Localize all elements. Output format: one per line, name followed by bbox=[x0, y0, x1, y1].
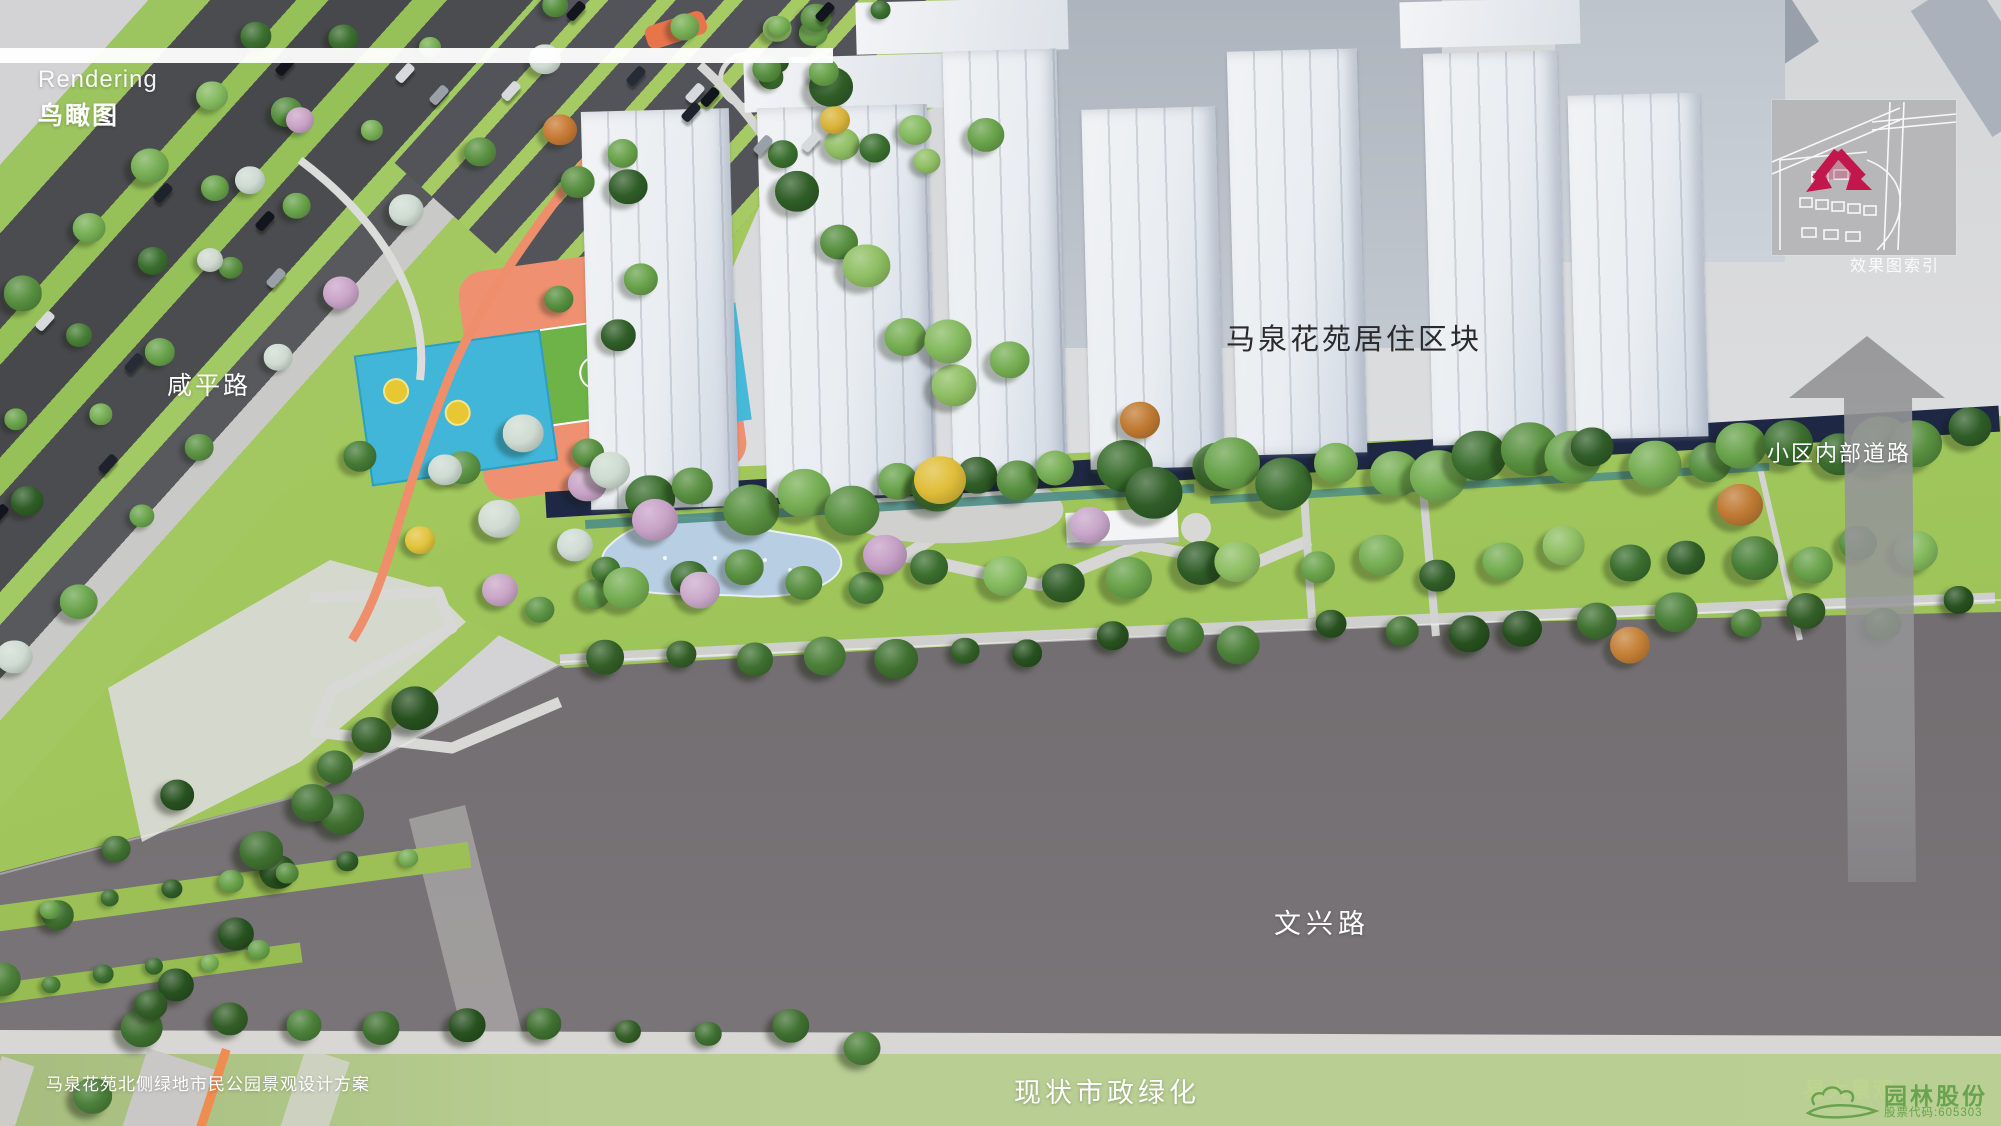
road-label-xianping: 咸平路 bbox=[167, 366, 251, 402]
key-map-caption: 效果图索引 bbox=[1850, 252, 1940, 276]
internal-road-label: 小区内部道路 bbox=[1767, 436, 1911, 468]
key-map-inset bbox=[1772, 100, 1956, 255]
key-map-sketch bbox=[1772, 100, 1956, 255]
residential-towers-group bbox=[0, 0, 2001, 1126]
tower-podium bbox=[1399, 0, 1580, 48]
project-title: 马泉花苑北侧绿地市民公园景观设计方案 bbox=[46, 1070, 370, 1095]
residential-tower bbox=[1423, 50, 1567, 445]
residential-block-label: 马泉花苑居住区块 bbox=[1226, 316, 1482, 358]
residential-tower bbox=[1568, 92, 1709, 439]
residential-tower bbox=[1081, 106, 1224, 469]
park-service-building bbox=[1065, 507, 1178, 543]
residential-tower bbox=[757, 104, 937, 498]
residential-tower bbox=[581, 108, 739, 510]
company-logo-icon bbox=[1804, 1082, 1882, 1122]
road-label-wenxing: 文兴路 bbox=[1274, 902, 1370, 941]
slide-eyebrow: Rendering bbox=[38, 66, 158, 94]
birdseye-rendering-canvas: Rendering 鸟瞰图 咸平路 马泉花苑居住区块 小区内部道路 文兴路 现状… bbox=[0, 0, 2001, 1126]
residential-tower bbox=[1227, 48, 1368, 455]
tower-podium bbox=[855, 0, 1068, 55]
municipal-green-label: 现状市政绿化 bbox=[1014, 1071, 1200, 1110]
title-underline-bar bbox=[0, 48, 833, 63]
page-title: 鸟瞰图 bbox=[38, 96, 119, 132]
stock-code: 股票代码:605303 bbox=[1884, 1104, 1983, 1120]
residential-tower bbox=[942, 49, 1067, 476]
